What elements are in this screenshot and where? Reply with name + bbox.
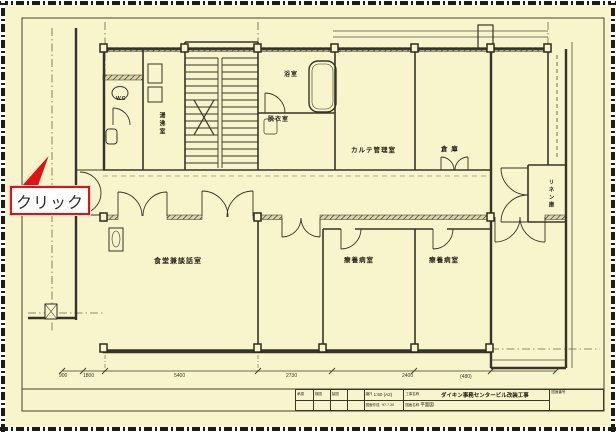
dimension-value: 1800 xyxy=(83,373,94,379)
scale-label: 縮尺 xyxy=(365,392,374,397)
column-markers xyxy=(45,44,551,352)
click-callout[interactable]: クリック xyxy=(10,186,90,215)
drawing-name-label: 図面名称 xyxy=(404,403,420,408)
approval-label: 承認 xyxy=(296,392,305,397)
scale-value: 1:50 (A2) xyxy=(374,392,393,397)
room-label-bath: 浴室 xyxy=(284,72,298,78)
floor-plan-drawing xyxy=(0,0,616,432)
click-callout-label: クリック xyxy=(16,189,84,213)
door-arcs xyxy=(80,93,545,249)
room-label-ward1: 療養病室 xyxy=(344,258,374,265)
drawing-name-value: 平面図 xyxy=(420,402,434,408)
dimension-value: 2730 xyxy=(286,373,297,379)
title-block: 承認 検図 製図 縮尺 1:50 (A2) 図面作成 '97.7.30 xyxy=(295,389,604,411)
extra-bottom-empty xyxy=(348,400,364,411)
room-label-linen: リネン庫 xyxy=(547,179,553,209)
staircase xyxy=(185,58,258,168)
room-label-wc: WC xyxy=(116,97,126,102)
check-label: 検図 xyxy=(314,392,323,397)
made-value: '97.7.30 xyxy=(381,403,395,407)
screenshot-root: WC 湯沸室 浴室 脱衣室 カルテ管理室 倉 庫 リネン庫 食堂兼談話室 療養病… xyxy=(0,0,616,432)
room-label-souko: 倉 庫 xyxy=(441,147,459,154)
title-block-draft-cell: 製図 xyxy=(330,390,347,410)
room-label-datsui: 脱衣室 xyxy=(268,117,289,123)
title-block-extra-cell xyxy=(347,390,364,410)
title-block-check-cell: 検図 xyxy=(313,390,330,410)
dimension-value: 900 xyxy=(59,373,67,379)
room-label-dining: 食堂兼談話室 xyxy=(154,258,202,265)
room-label-yuwakashi: 湯沸室 xyxy=(158,112,164,136)
exterior-wall-thin-lines xyxy=(333,31,572,368)
draft-label: 製図 xyxy=(331,392,340,397)
title-block-approval-cell: 承認 xyxy=(296,390,313,410)
project-label: 工事名称 xyxy=(404,392,420,397)
room-label-karte: カルテ管理室 xyxy=(351,148,396,155)
project-title: ダイキン事務センタービル改装工事 xyxy=(441,391,529,399)
room-label-ward2: 療養病室 xyxy=(429,258,459,265)
reference-grid-lines xyxy=(28,22,600,349)
check-value-empty xyxy=(314,400,330,411)
interior-walls xyxy=(76,25,566,351)
title-block-number-cell: 図面番号 xyxy=(549,390,603,410)
drawing-number-label: 図面番号 xyxy=(550,390,566,395)
approval-value-empty xyxy=(296,400,313,411)
title-block-project-cell: 工事名称 ダイキン事務センタービル改装工事 図面名称 平面図 xyxy=(403,390,549,410)
dimension-value: 5400 xyxy=(174,373,185,379)
made-label: 図面作成 xyxy=(365,403,381,408)
dimension-value: 2400 xyxy=(402,373,413,379)
title-block-scale-cell: 縮尺 1:50 (A2) 図面作成 '97.7.30 xyxy=(364,390,404,410)
extra-top-empty xyxy=(348,390,364,400)
dimension-value: (480) xyxy=(460,374,472,380)
dimension-line xyxy=(59,353,559,374)
draft-value-empty xyxy=(331,400,347,411)
